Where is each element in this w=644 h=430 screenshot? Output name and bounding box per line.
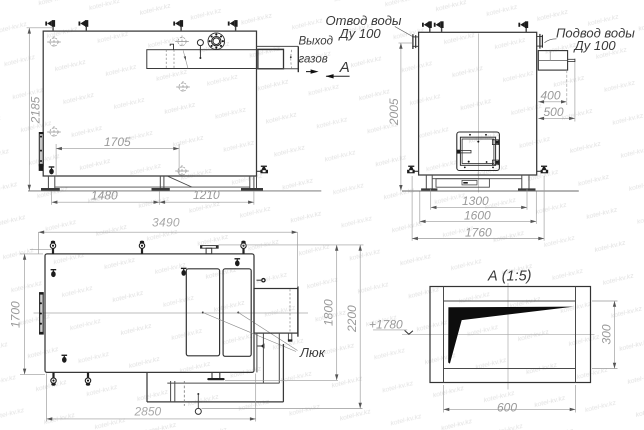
svg-text:2850: 2850 bbox=[134, 405, 162, 419]
svg-text:А (1:5): А (1:5) bbox=[487, 269, 532, 285]
svg-text:500: 500 bbox=[544, 105, 564, 119]
svg-text:600: 600 bbox=[497, 401, 517, 415]
svg-text:1300: 1300 bbox=[462, 194, 489, 208]
svg-text:2200: 2200 bbox=[345, 305, 359, 333]
svg-text:газов: газов bbox=[299, 53, 328, 65]
svg-text:1480: 1480 bbox=[91, 188, 118, 202]
svg-text:Ду 100: Ду 100 bbox=[573, 38, 617, 53]
svg-text:+1780: +1780 bbox=[369, 318, 403, 332]
svg-text:А: А bbox=[339, 59, 350, 76]
svg-text:400: 400 bbox=[541, 88, 561, 102]
svg-text:Ду 100: Ду 100 bbox=[338, 26, 382, 41]
svg-text:Люк: Люк bbox=[299, 345, 326, 360]
svg-text:1800: 1800 bbox=[322, 299, 336, 326]
svg-text:1210: 1210 bbox=[193, 188, 220, 202]
svg-text:1760: 1760 bbox=[465, 225, 492, 239]
svg-text:1700: 1700 bbox=[8, 301, 22, 328]
svg-text:Выход: Выход bbox=[299, 36, 334, 48]
svg-text:3490: 3490 bbox=[152, 216, 180, 230]
svg-text:1600: 1600 bbox=[464, 208, 491, 222]
svg-text:1705: 1705 bbox=[104, 135, 131, 149]
svg-text:2005: 2005 bbox=[387, 98, 401, 126]
svg-text:300: 300 bbox=[600, 324, 614, 344]
svg-text:2185: 2185 bbox=[29, 96, 43, 124]
